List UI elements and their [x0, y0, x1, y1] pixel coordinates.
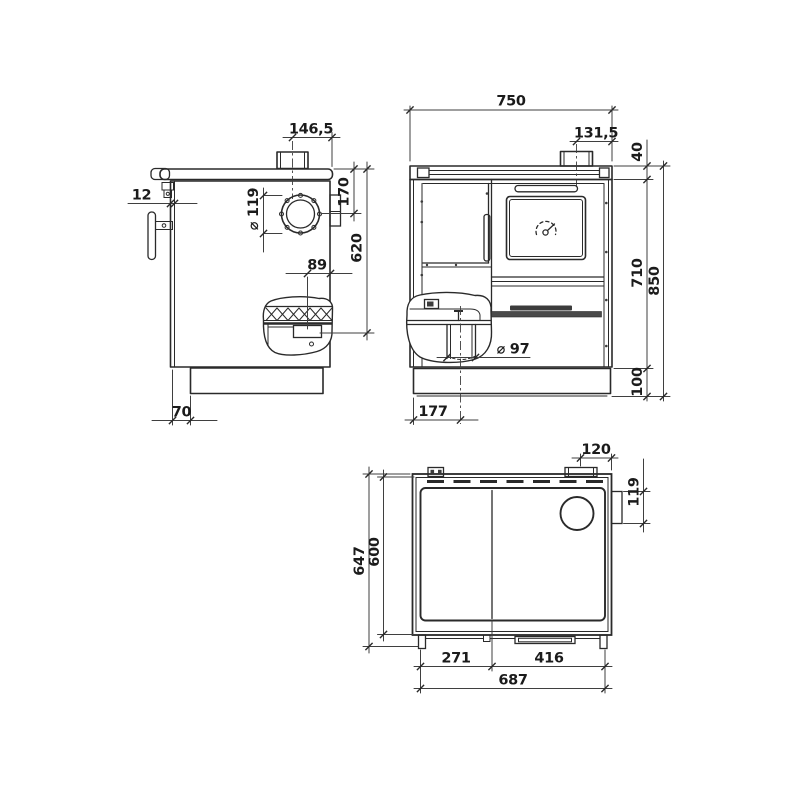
dim-label-hob-total: 687 [498, 673, 527, 689]
dim-label-hob-left: 271 [441, 651, 471, 667]
side-door-handle [148, 212, 173, 260]
top-latch [428, 468, 444, 477]
front-handle-top [515, 637, 575, 644]
stove-dimension-drawing: 146,5 12 ⌀ 119 170 620 [0, 0, 800, 800]
dim-label-front-overhang: 12 [132, 188, 152, 204]
oven-vent-slot [515, 186, 578, 192]
leg-left [419, 635, 426, 649]
side-flue-collar [280, 193, 322, 235]
dim-label-overall-width: 750 [496, 94, 526, 110]
dim-label-body-depth: 600 [367, 537, 383, 567]
rail-cap-left [418, 168, 430, 178]
dim-label-flue-diameter: ⌀ 119 [246, 188, 262, 231]
cooktop-plate [421, 488, 606, 621]
side-dimensions: 146,5 12 ⌀ 119 170 620 [128, 122, 374, 426]
dim-label-top-to-outlet: 620 [350, 233, 366, 263]
top-front-edge [419, 635, 608, 649]
front-top-plate [410, 166, 612, 180]
firebox-door [422, 184, 492, 268]
leg-right [600, 635, 607, 649]
side-top-plate [151, 169, 333, 180]
front-view: 750 131,5 40 710 100 850 ⌀ 97 [404, 94, 670, 425]
side-rail-bracket [162, 183, 174, 198]
dim-label-top-to-flue: 170 [337, 177, 353, 207]
dim-label-stub-to-side: 120 [581, 442, 611, 458]
dim-label-overall-depth: 647 [352, 546, 368, 575]
dim-label-bottom-outlet-diameter: ⌀ 97 [497, 342, 530, 358]
drawer-handle-slot [510, 306, 572, 311]
dim-label-overall-height: 850 [647, 266, 663, 296]
oven-window [507, 197, 586, 260]
dim-label-body-height: 710 [630, 258, 646, 288]
dim-label-plinth-recess: 70 [172, 405, 192, 421]
oven-door [492, 186, 604, 278]
top-view: 120 119 647 600 271 416 [352, 442, 650, 693]
oven-thermometer-icon [536, 221, 556, 235]
side-plinth [191, 368, 324, 394]
side-detail-bubble [262, 297, 334, 355]
rail-cap-right [600, 168, 610, 178]
front-chimney-stub [561, 144, 593, 187]
dim-label-plinth-height: 100 [630, 367, 646, 397]
dim-label-outlet-offset: 89 [307, 258, 327, 274]
side-chimney-stub [277, 141, 308, 199]
front-plinth [414, 369, 611, 397]
top-rear-cover [612, 492, 623, 524]
side-view: 146,5 12 ⌀ 119 170 620 [128, 122, 374, 426]
dim-label-flue-to-back: 146,5 [289, 122, 334, 138]
dim-label-flue-to-side: 131,5 [574, 126, 619, 142]
hotplate-ring [561, 497, 594, 530]
dim-label-rear-cover-length: 119 [627, 477, 643, 507]
dim-label-hob-right: 416 [534, 651, 564, 667]
dim-label-plate-thickness: 40 [630, 142, 646, 162]
top-chimney-stub [565, 468, 597, 477]
technical-drawing-page: 146,5 12 ⌀ 119 170 620 [0, 0, 800, 800]
dim-label-side-to-outlet: 177 [418, 404, 447, 420]
